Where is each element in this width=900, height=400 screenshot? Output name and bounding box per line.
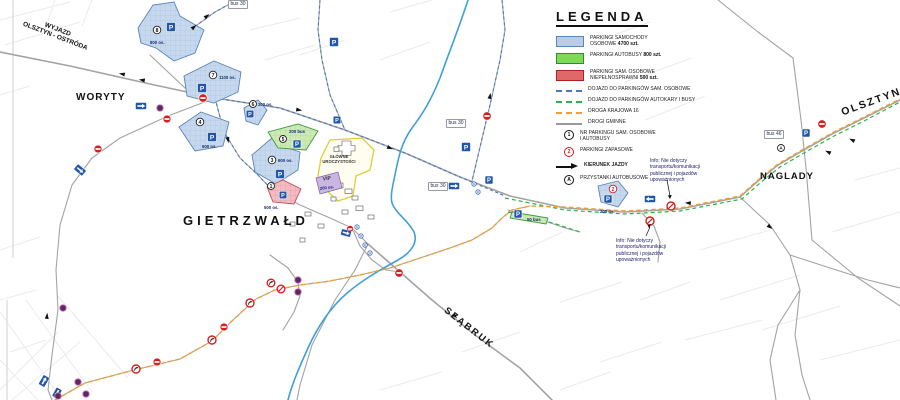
legend-item-label: DROGA KRAJOWA 16 bbox=[588, 108, 639, 114]
legend-title: LEGENDA bbox=[556, 9, 648, 27]
local-road-line-swatch bbox=[556, 123, 582, 125]
svg-text:P: P bbox=[516, 212, 520, 218]
parking-sign-icon: P bbox=[279, 191, 287, 199]
no-entry-sign-icon bbox=[163, 115, 171, 123]
legend-item-count: 500 szt. bbox=[640, 75, 658, 81]
bus-parking-swatch bbox=[556, 53, 584, 64]
route-label: bus 30 bbox=[228, 0, 248, 9]
stop-dot bbox=[55, 393, 61, 399]
legend-item-label: PRZYSTANKI AUTOBUSOWE bbox=[580, 175, 648, 181]
svg-text:4: 4 bbox=[199, 120, 202, 126]
parking-capacity: 200 bus bbox=[289, 129, 306, 134]
direction-arrow-icon bbox=[296, 108, 303, 113]
parking-number-badge: 7 bbox=[209, 71, 217, 79]
reserve-parking-symbol: 2 bbox=[564, 147, 574, 157]
no-turn-sign-icon bbox=[246, 299, 254, 307]
place-label-naglady: NAGLADY bbox=[760, 172, 814, 182]
gietrzwald-parking-map: 8 P 800 os. 7 P 1100 os. 4 P 600 os. 6 P… bbox=[0, 0, 900, 400]
one-way-sign-icon bbox=[74, 164, 87, 176]
parking-number-badge: 6 bbox=[250, 101, 257, 108]
direction-arrow-icon bbox=[824, 149, 831, 155]
parking-number-badge: 1 bbox=[268, 183, 275, 190]
route-label: bus 30 bbox=[446, 119, 466, 128]
parking-number-badge: 3 bbox=[268, 156, 276, 164]
parking-capacity: 1100 os. bbox=[219, 75, 236, 80]
legend-item-label: NR PARKINGU SAM. OSOBOWE I AUTOBUSY bbox=[580, 130, 656, 142]
svg-text:7: 7 bbox=[212, 73, 215, 79]
no-entry-sign-icon bbox=[483, 112, 491, 120]
no-entry-sign-icon bbox=[94, 145, 102, 153]
one-way-sign-icon bbox=[645, 196, 656, 203]
svg-text:P: P bbox=[487, 178, 491, 184]
legend-item: 2 PARKINGI ZAPASOWE bbox=[556, 147, 714, 157]
no-vehicles-sign-icon bbox=[646, 217, 654, 225]
parking-sign-icon: P bbox=[246, 110, 254, 118]
parking-sign-icon: P bbox=[198, 84, 207, 93]
parking-capacity: 200 os. bbox=[600, 209, 615, 214]
bus-stop-icon bbox=[355, 225, 359, 229]
parking-area-7 bbox=[184, 61, 241, 103]
legend-item-label: DROGI GMINNE bbox=[588, 119, 626, 125]
svg-text:P: P bbox=[210, 134, 215, 141]
legend-item-label: DOJAZD DO PARKINGÓW SAM. OSOBOWE bbox=[588, 86, 690, 92]
no-entry-sign-icon bbox=[220, 323, 228, 331]
stop-dot bbox=[295, 289, 301, 295]
bus-stop-icon bbox=[363, 243, 367, 247]
direction-arrow-icon bbox=[556, 163, 578, 170]
svg-text:1: 1 bbox=[270, 184, 273, 190]
svg-text:P: P bbox=[464, 144, 469, 151]
bus-access-line-swatch bbox=[556, 101, 582, 103]
svg-text:P: P bbox=[200, 85, 205, 92]
legend-item: DOJAZD DO PARKINGÓW SAM. OSOBOWE bbox=[556, 86, 714, 92]
legend-item-label: KIERUNEK JAZDY bbox=[584, 162, 628, 168]
legend-item: A PRZYSTANKI AUTOBUSOWE bbox=[556, 175, 714, 185]
svg-text:P: P bbox=[278, 171, 283, 178]
no-vehicles-sign-icon bbox=[667, 202, 675, 210]
svg-text:P: P bbox=[332, 39, 337, 46]
parking-capacity: 500 os. bbox=[264, 205, 279, 210]
svg-text:P: P bbox=[169, 24, 174, 31]
no-entry-sign-icon bbox=[395, 269, 403, 277]
bus-stop-icon bbox=[368, 251, 372, 255]
stop-dot bbox=[60, 305, 66, 311]
parking-areas bbox=[138, 2, 628, 224]
parking-number-badge: 8 bbox=[153, 26, 161, 34]
stop-dot bbox=[75, 379, 81, 385]
direction-arrow-icon bbox=[118, 71, 125, 76]
parking-sign-icon: P bbox=[276, 170, 285, 179]
sanctuary-label: GŁÓWNE UROCZYSTOŚCI bbox=[320, 155, 358, 165]
direction-arrows bbox=[45, 12, 856, 319]
parking-sign-icon: P bbox=[485, 176, 493, 184]
parking-capacity: 200 os. bbox=[258, 102, 273, 107]
car-access-line-swatch bbox=[556, 90, 582, 92]
legend: LEGENDA PARKINGI SAMOCHODY OSOBOWE 4700 … bbox=[556, 8, 714, 190]
parking-sign-icon: P bbox=[802, 129, 810, 137]
parking-capacity: 600 os. bbox=[278, 158, 293, 163]
svg-text:P: P bbox=[295, 142, 299, 148]
svg-text:6: 6 bbox=[252, 102, 255, 108]
svg-text:P: P bbox=[281, 193, 285, 199]
svg-text:5: 5 bbox=[282, 137, 285, 143]
legend-item: PARKINGI AUTOBUSY 800 szt. bbox=[556, 52, 714, 64]
place-label-woryty: WORYTY bbox=[76, 92, 126, 103]
svg-text:P: P bbox=[248, 112, 252, 118]
parking-sign-icon: P bbox=[333, 116, 341, 124]
legend-item-count: 4700 szt. bbox=[618, 41, 639, 47]
bus-stop-badge: A bbox=[778, 145, 785, 152]
direction-arrow-icon bbox=[45, 313, 50, 319]
car-parking-swatch bbox=[556, 36, 584, 47]
parking-sign-icon: P bbox=[208, 133, 217, 142]
legend-item-label: DOJAZD DO PARKINGÓW AUTOKARY I BUSY bbox=[588, 97, 695, 103]
parking-sign-icon: P bbox=[293, 140, 301, 148]
legend-item-label: PARKINGI AUTOBUSY bbox=[590, 52, 642, 58]
parking-number-symbol: 1 bbox=[564, 130, 574, 140]
legend-item: KIERUNEK JAZDY bbox=[556, 162, 714, 170]
national-road-line-swatch bbox=[556, 112, 582, 114]
legend-item: PARKINGI SAM. OSOBOWE NIEPEŁNOSPRAWNI 50… bbox=[556, 69, 714, 81]
roads bbox=[0, 0, 900, 400]
parking-number-badge: 5 bbox=[280, 136, 287, 143]
parking-sign-icon: P bbox=[514, 210, 522, 218]
background-streets bbox=[0, 0, 900, 400]
info-note: Info: Nie dotyczy transportu/komunikacji… bbox=[616, 238, 666, 263]
svg-text:P: P bbox=[606, 197, 610, 203]
parking-sign-icon: P bbox=[167, 23, 176, 32]
parking-capacity: 600 os. bbox=[202, 144, 217, 149]
svg-text:3: 3 bbox=[271, 158, 274, 164]
route-label: bus 46 bbox=[764, 130, 784, 139]
parking-sign-icon: P bbox=[462, 143, 471, 152]
legend-item: DROGA KRAJOWA 16 bbox=[556, 108, 714, 114]
legend-item-count: 800 szt. bbox=[643, 52, 661, 58]
legend-item-label: PARKINGI ZAPASOWE bbox=[580, 147, 633, 153]
no-turn-sign-icon bbox=[267, 279, 275, 287]
svg-text:P: P bbox=[804, 131, 808, 137]
stop-dot bbox=[295, 277, 301, 283]
parking-sign-icon: P bbox=[330, 38, 339, 47]
parking-sign-icon: P bbox=[604, 195, 612, 203]
bus-stop-symbol: A bbox=[564, 175, 574, 185]
no-entry-sign-icon bbox=[153, 358, 161, 366]
legend-item: PARKINGI SAMOCHODY OSOBOWE 4700 szt. bbox=[556, 35, 714, 47]
stop-dot bbox=[157, 105, 163, 111]
parking-number-badge: 4 bbox=[196, 118, 204, 126]
no-turn-sign-icon bbox=[132, 365, 140, 373]
no-vehicles-sign-icon bbox=[277, 285, 285, 293]
stop-dot bbox=[83, 391, 89, 397]
svg-text:P: P bbox=[335, 118, 339, 124]
direction-arrow-icon bbox=[685, 201, 691, 205]
direction-arrow-icon bbox=[848, 137, 855, 143]
svg-text:8: 8 bbox=[156, 28, 159, 34]
parking-capacity: 50 bus bbox=[527, 217, 541, 222]
legend-item: DOJAZD DO PARKINGÓW AUTOKARY I BUSY bbox=[556, 97, 714, 103]
one-way-sign-icon bbox=[136, 103, 147, 110]
disabled-parking-swatch bbox=[556, 70, 584, 81]
bus-stop-icon bbox=[476, 190, 480, 194]
bus-stop-icon bbox=[359, 234, 363, 238]
no-entry-sign-icon bbox=[199, 94, 207, 102]
no-turn-sign-icon bbox=[208, 336, 216, 344]
map-canvas: 8 P 800 os. 7 P 1100 os. 4 P 600 os. 6 P… bbox=[0, 0, 900, 400]
legend-item: 1 NR PARKINGU SAM. OSOBOWE I AUTOBUSY bbox=[556, 130, 714, 142]
parking-capacity: 800 os. bbox=[150, 40, 165, 45]
bus-stop-icon bbox=[472, 182, 476, 186]
one-way-sign-icon bbox=[449, 183, 460, 190]
no-entry-sign-icon bbox=[818, 120, 826, 128]
place-label-gietrzwald: GIETRZWAŁD bbox=[183, 214, 309, 228]
route-label: bus 30 bbox=[428, 182, 448, 191]
legend-item: DROGI GMINNE bbox=[556, 119, 714, 125]
